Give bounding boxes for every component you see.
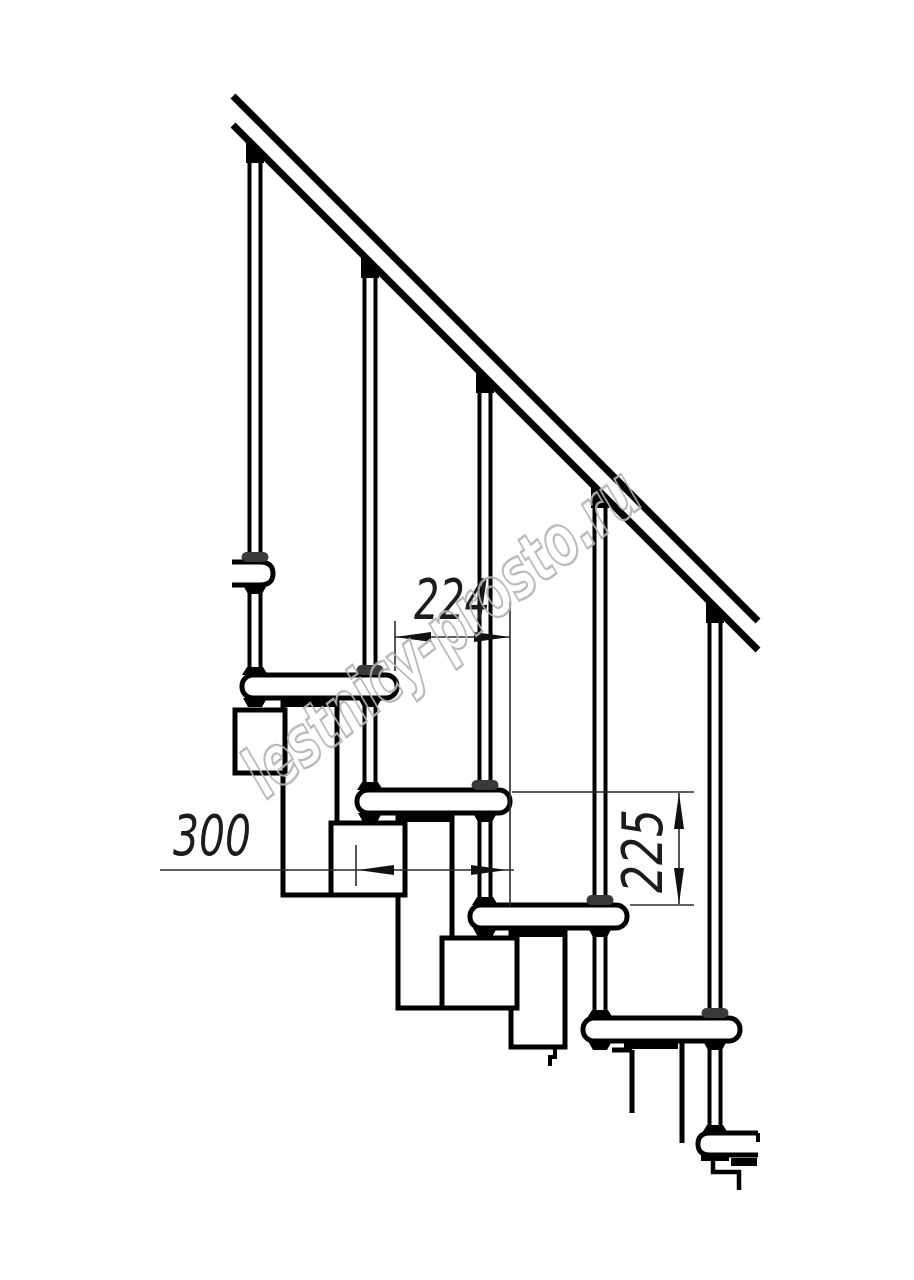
staircase-elevation-drawing: 224 300 225 lestnicy-prosto.ru	[0, 0, 914, 1280]
module-flange-icon	[398, 811, 452, 822]
baluster-5	[710, 623, 721, 1136]
baluster-nut-icon	[703, 1041, 727, 1050]
tread-3	[470, 905, 627, 928]
baluster-collar-icon	[587, 895, 614, 905]
baluster-nut-icon	[243, 698, 267, 707]
module-box-2	[331, 823, 405, 895]
tread-5	[698, 1133, 758, 1155]
baluster-nut-icon	[473, 813, 497, 822]
baluster-base-wedge-icon	[242, 667, 268, 675]
tread-2	[357, 790, 510, 813]
baluster-nut-icon	[588, 1041, 612, 1050]
dimension-label-depth: 300	[173, 804, 251, 869]
landing-edge	[232, 562, 273, 585]
module-flange-icon	[511, 926, 565, 937]
baluster-4	[595, 508, 606, 1021]
watermark-text: lestnicy-prosto.ru	[226, 452, 656, 813]
baluster-collar-icon	[702, 1008, 729, 1018]
baluster-base-wedge-icon	[702, 1125, 728, 1133]
staircase-drawing-canvas: 224 300 225 lestnicy-prosto.ru	[0, 0, 914, 1280]
dimension-225: 225	[512, 792, 694, 905]
baluster-nut-icon	[243, 585, 267, 594]
module-flange-icon	[731, 1158, 757, 1166]
baluster-1	[250, 163, 261, 678]
module-box-3	[442, 938, 517, 1008]
module-flange-icon	[624, 1039, 678, 1049]
baluster-base-wedge-icon	[587, 1010, 613, 1018]
module-flange-icon	[701, 1153, 729, 1161]
baluster-base-wedge-icon	[357, 782, 383, 790]
baluster-base-wedge-icon	[472, 897, 498, 905]
baluster-collar-icon	[472, 780, 499, 790]
baluster-collar-icon	[242, 552, 269, 562]
dimension-label-rise: 225	[611, 809, 676, 893]
module-tube-3-foot	[550, 1047, 565, 1066]
tread-4	[583, 1018, 740, 1041]
baluster-nut-icon	[588, 928, 612, 937]
